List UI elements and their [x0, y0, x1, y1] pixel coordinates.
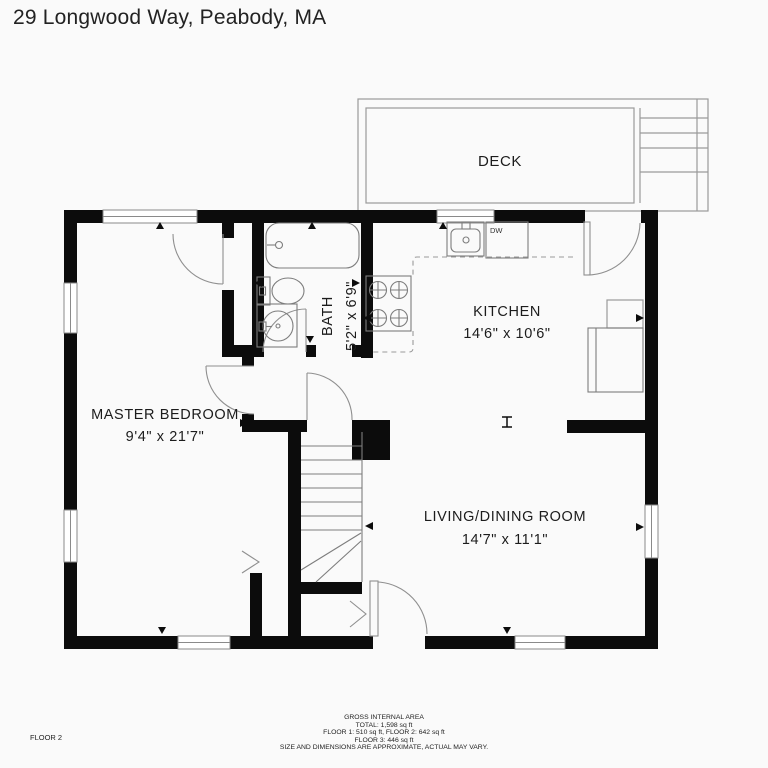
footer-floor3: FLOOR 3: 446 sq ft: [0, 737, 768, 745]
kitchen-dimensions: 14'6" x 10'6": [463, 326, 550, 342]
bath-dimensions: 5'2" x 6'9": [344, 281, 360, 351]
mid-dimension-tick: [502, 417, 512, 427]
living-dining-label: LIVING/DINING ROOM: [424, 509, 586, 525]
master-bedroom-dimensions: 9'4" x 21'7": [126, 429, 205, 445]
bedroom-door-upper: [173, 234, 223, 284]
living-dining-dimensions: 14'7" x 11'1": [462, 532, 548, 548]
dishwasher-icon: DW: [486, 222, 528, 258]
closet-door-mark: [242, 551, 259, 573]
window: [178, 636, 230, 649]
floor-label: FLOOR 2: [30, 733, 62, 742]
floor-plan-page: 29 Longwood Way, Peabody, MA: [0, 0, 768, 768]
deck-door: [584, 222, 640, 275]
window: [437, 210, 494, 223]
master-bedroom-label: MASTER BEDROOM: [91, 407, 239, 423]
refrigerator-icon: [588, 300, 643, 392]
footer-disclaimer: SIZE AND DIMENSIONS ARE APPROXIMATE, ACT…: [0, 744, 768, 752]
deck-outline: [358, 99, 708, 211]
dishwasher-label: DW: [490, 226, 503, 235]
window: [645, 505, 658, 558]
deck-stairs-icon: [640, 118, 708, 172]
footer-notes: GROSS INTERNAL AREA TOTAL: 1,598 sq ft F…: [0, 714, 768, 752]
window: [103, 210, 197, 223]
stair-door: [307, 373, 352, 420]
footer-floor1-2: FLOOR 1: 510 sq ft, FLOOR 2: 642 sq ft: [0, 729, 768, 737]
bath-door: [263, 309, 306, 352]
interior-walls: [222, 210, 658, 636]
bath-label: BATH: [320, 296, 336, 336]
front-door: [370, 581, 427, 636]
window: [64, 510, 77, 562]
footer-gross-area: GROSS INTERNAL AREA: [0, 714, 768, 722]
floor-plan-drawing: DW: [0, 0, 768, 768]
footer-total: TOTAL: 1,598 sq ft: [0, 722, 768, 730]
toilet-icon: [257, 277, 304, 305]
bathtub-icon: [266, 223, 359, 268]
kitchen-label: KITCHEN: [473, 304, 541, 320]
entry-door-mark: [350, 601, 366, 627]
window: [515, 636, 565, 649]
kitchen-sink-icon: [447, 222, 484, 256]
window: [64, 283, 77, 333]
deck-label: DECK: [478, 153, 522, 170]
